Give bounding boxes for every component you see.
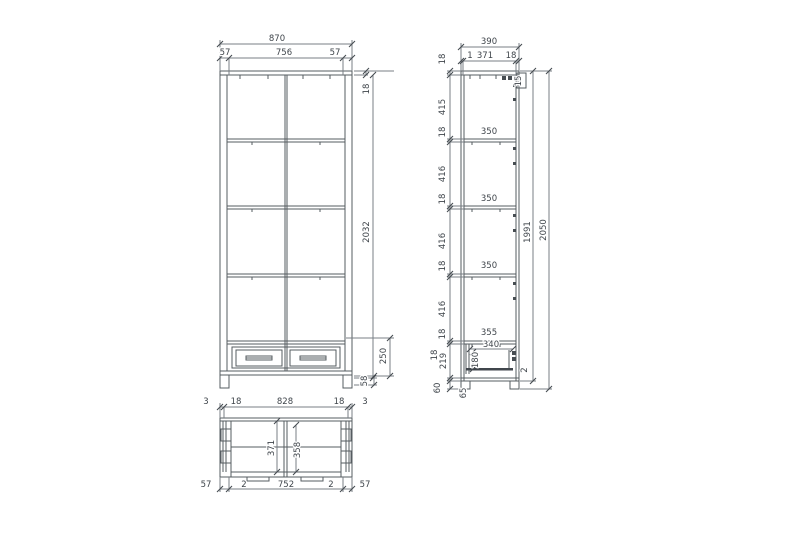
side-hardware-marks: [502, 76, 516, 361]
dim-label: 1: [467, 51, 472, 61]
dim-label: 18: [438, 329, 448, 340]
dim-label: 250: [379, 348, 389, 364]
dim-label: 870: [269, 34, 285, 44]
dim-label: 350: [481, 261, 497, 271]
dim-label: 18: [438, 127, 448, 138]
plan-dimension-ticks: [217, 404, 355, 492]
plan-handle-left: [247, 477, 269, 481]
dim-label: 355: [481, 328, 497, 338]
dim-label: 390: [481, 37, 497, 47]
dim-label: 416: [438, 233, 448, 249]
front-carcass-lines: [220, 71, 352, 375]
dim-label: 15: [514, 76, 524, 87]
front-foot-left: [220, 375, 229, 388]
dim-label: 18: [430, 350, 440, 361]
dim-label: 350: [481, 127, 497, 137]
dim-label: 65: [459, 388, 469, 399]
plan-view: 318828183371358572752257: [201, 397, 371, 492]
dim-label: 828: [277, 397, 293, 407]
dim-label: 18: [438, 194, 448, 205]
drawing-canvas: 870577565718203225058 318828183371358572…: [0, 0, 800, 533]
dim-label: 3: [362, 397, 367, 407]
front-dim-labels: 870577565718203225058: [220, 34, 389, 386]
dim-label: 57: [330, 48, 341, 58]
dim-label: 219: [439, 353, 449, 369]
dim-label: 18: [506, 51, 517, 61]
front-drawer-section: [232, 347, 340, 368]
dim-label: 180: [471, 352, 481, 368]
dim-label: 60: [433, 383, 443, 394]
dim-label: 18: [231, 397, 242, 407]
side-dimension-ticks: [447, 44, 552, 392]
dim-label: 340: [483, 340, 499, 350]
plan-handle-right: [301, 477, 323, 481]
front-foot-right: [343, 375, 352, 388]
dim-label: 57: [220, 48, 231, 58]
dim-label: 18: [438, 261, 448, 272]
dim-label: 2050: [539, 219, 549, 241]
front-view: 870577565718203225058: [217, 34, 394, 388]
dim-label: 415: [438, 99, 448, 115]
dim-label: 2: [520, 367, 530, 372]
dim-label: 752: [278, 480, 294, 490]
dim-label: 371: [477, 51, 493, 61]
side-dimension-lines: [447, 43, 552, 389]
plan-structure-lines: [220, 421, 352, 477]
dim-label: 371: [267, 440, 277, 456]
dim-label: 2: [328, 480, 333, 490]
technical-drawing: 870577565718203225058 318828183371358572…: [0, 0, 800, 533]
dim-label: 416: [438, 166, 448, 182]
dim-label: 2: [241, 480, 246, 490]
dim-label: 18: [438, 54, 448, 65]
dim-label: 350: [481, 194, 497, 204]
dim-label: 1991: [523, 221, 533, 243]
dim-label: 416: [438, 301, 448, 317]
dim-label: 18: [362, 84, 372, 95]
side-foot-back: [510, 381, 519, 389]
dim-label: 756: [276, 48, 292, 58]
dim-label: 358: [293, 442, 303, 458]
dim-label: 2032: [362, 221, 372, 243]
dim-label: 57: [201, 480, 212, 490]
dim-label: 3: [203, 397, 208, 407]
dim-label: 58: [360, 376, 370, 387]
dim-label: 18: [334, 397, 345, 407]
side-view: 3901371181815415183504161835041618350416…: [430, 37, 552, 398]
dim-label: 57: [360, 480, 371, 490]
